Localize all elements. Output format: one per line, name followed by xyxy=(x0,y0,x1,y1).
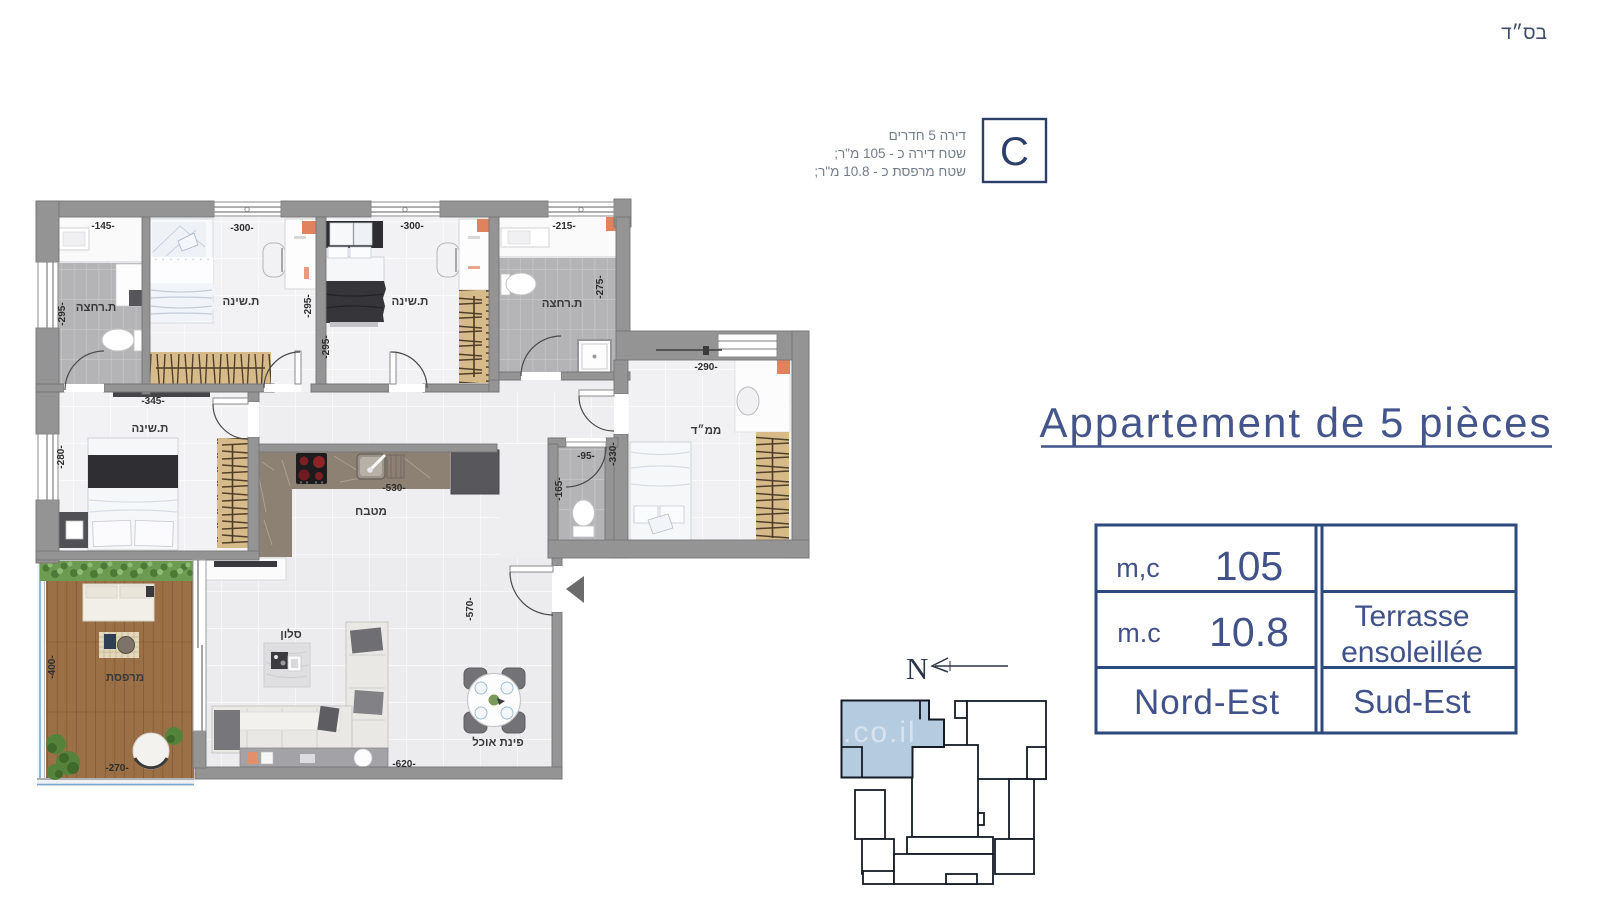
svg-text:-145-: -145- xyxy=(91,221,114,232)
svg-text:-300-: -300- xyxy=(230,223,253,234)
svg-text:Terrasse: Terrasse xyxy=(1354,600,1469,633)
svg-text:-95-: -95- xyxy=(577,451,595,462)
svg-text:10.8: 10.8 xyxy=(1209,609,1289,655)
svg-text:-275-: -275- xyxy=(595,275,606,298)
svg-text:ת.שינה: ת.שינה xyxy=(132,423,169,435)
svg-text:מטבח: מטבח xyxy=(355,506,387,518)
svg-text:Appartement de 5 pièces: Appartement de 5 pièces xyxy=(1040,399,1553,446)
svg-text:Sud-Est: Sud-Est xyxy=(1353,683,1470,720)
svg-text:מרפסת: מרפסת xyxy=(106,672,144,684)
svg-text:בס״ד: בס״ד xyxy=(1501,23,1547,44)
svg-text:Nord-Est: Nord-Est xyxy=(1134,683,1280,722)
svg-text:-295-: -295- xyxy=(321,335,332,358)
svg-text:-345-: -345- xyxy=(141,396,164,407)
svg-text:ת.שינה: ת.שינה xyxy=(223,296,260,308)
svg-text:-295-: -295- xyxy=(57,302,68,325)
svg-text:-620-: -620- xyxy=(392,759,415,770)
svg-text:-290-: -290- xyxy=(694,362,717,373)
svg-text:פינת אוכל: פינת אוכל xyxy=(472,736,523,749)
svg-text:N: N xyxy=(906,651,928,686)
svg-text:ensoleillée: ensoleillée xyxy=(1341,636,1483,669)
svg-text:105: 105 xyxy=(1215,543,1283,589)
svg-text:-400-: -400- xyxy=(47,655,58,678)
svg-text:-280-: -280- xyxy=(56,445,67,468)
svg-text:-530-: -530- xyxy=(382,483,405,494)
svg-text:-570-: -570- xyxy=(465,597,476,620)
svg-text:-330-: -330- xyxy=(608,442,619,465)
svg-text:.co.il: .co.il xyxy=(843,716,917,749)
svg-text:ת.שינה: ת.שינה xyxy=(392,296,429,308)
svg-text:C: C xyxy=(1000,130,1029,174)
svg-text:-165-: -165- xyxy=(554,477,565,500)
svg-text:-300-: -300- xyxy=(400,221,423,232)
svg-text:סלון: סלון xyxy=(280,628,302,641)
svg-text:ת.רחצה: ת.רחצה xyxy=(542,298,583,310)
svg-text:ת.רחצה: ת.רחצה xyxy=(76,302,117,314)
svg-text:ממ״ד: ממ״ד xyxy=(691,424,722,437)
svg-text:-295-: -295- xyxy=(303,294,314,317)
svg-text:-270-: -270- xyxy=(105,763,128,774)
svg-text:m,c: m,c xyxy=(1116,553,1160,583)
svg-text:m.c: m.c xyxy=(1117,618,1161,648)
svg-text:-215-: -215- xyxy=(552,221,575,232)
